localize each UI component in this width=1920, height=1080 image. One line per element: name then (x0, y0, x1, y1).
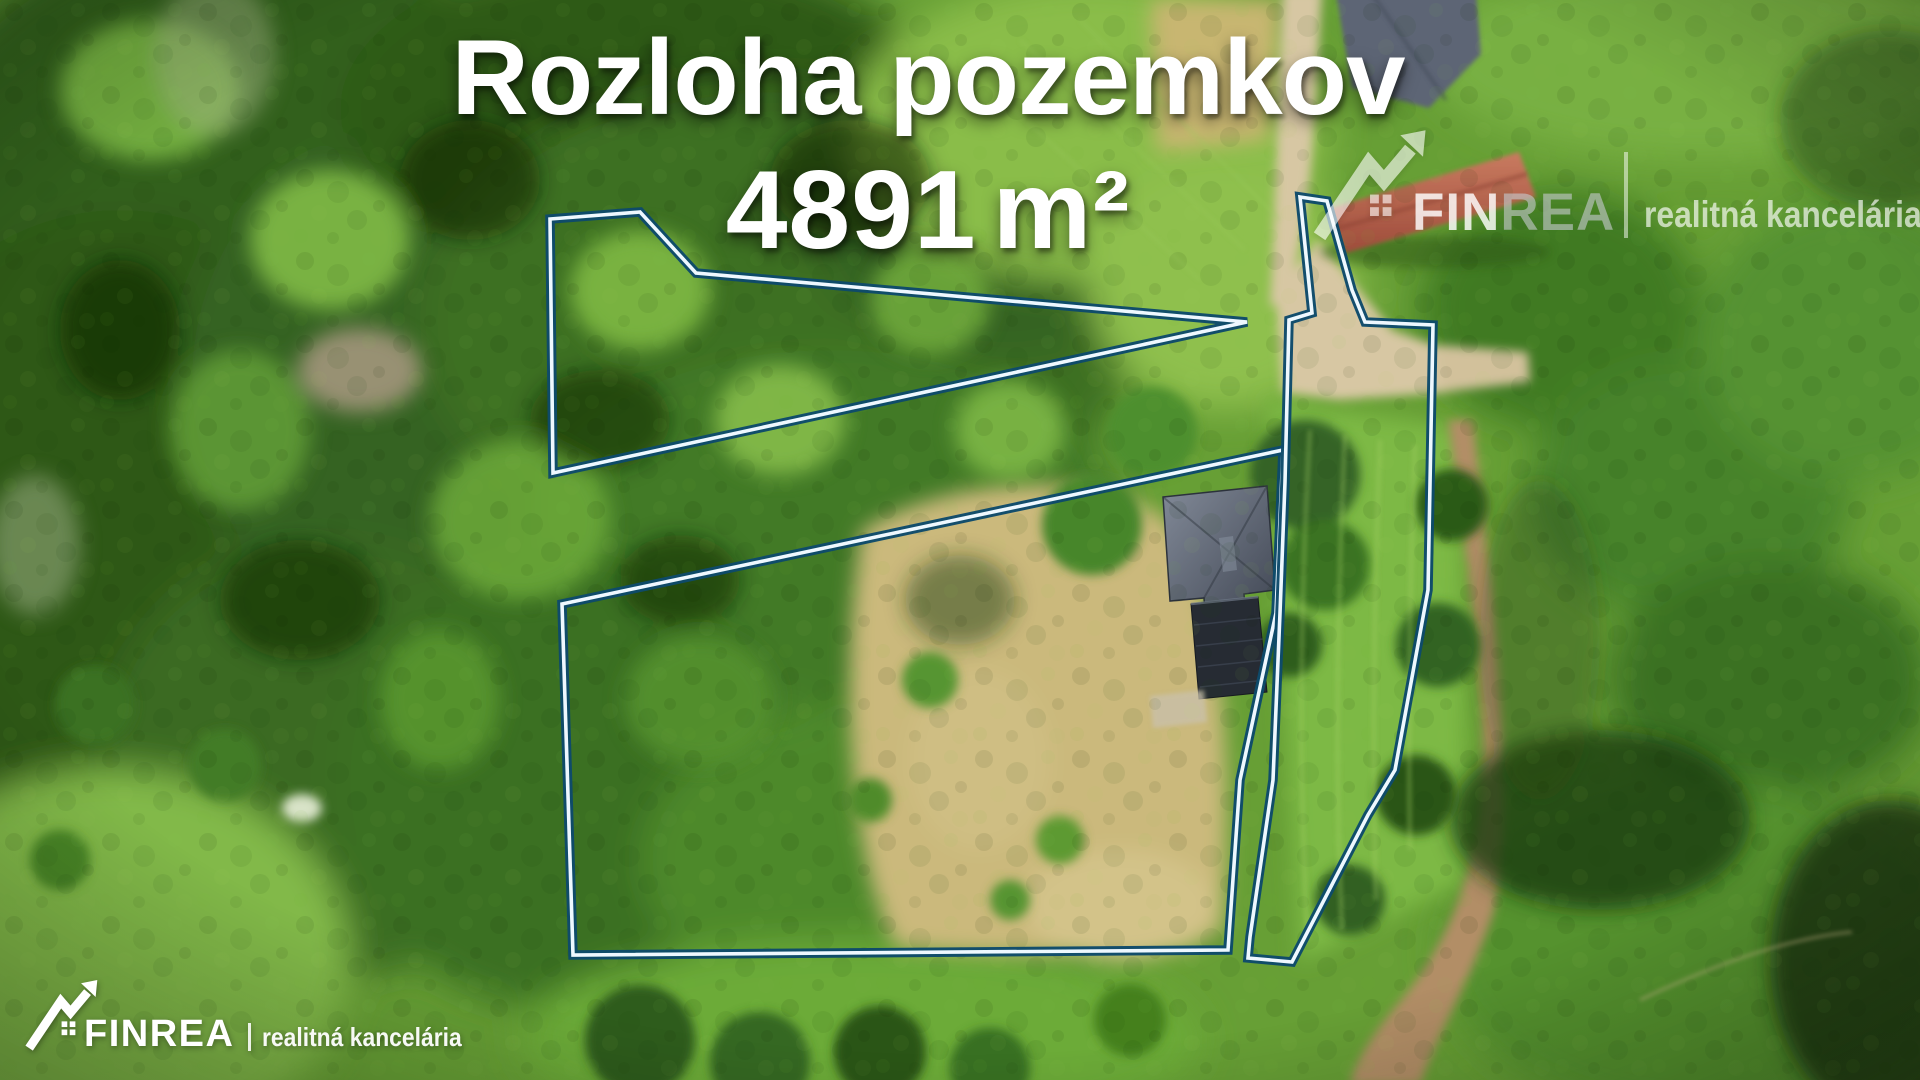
plot-main-field (562, 450, 1283, 955)
finrea-watermark: FINREA realitná kancelária (1312, 130, 1912, 256)
logo-tagline: realitná kancelária (262, 1022, 462, 1053)
aerial-photo: Rozloha pozemkov 4891m² FINREA realitná … (0, 0, 1920, 1080)
area-value: 4891 (726, 148, 977, 272)
logo-divider (248, 1023, 251, 1051)
watermark-divider (1624, 152, 1628, 238)
brand-name-fin: FIN (1412, 183, 1500, 242)
watermark-brand-name: FINREA (1412, 182, 1615, 243)
headline-title: Rozloha pozemkov (451, 12, 1404, 143)
area-unit: m² (993, 148, 1131, 272)
watermark-tagline: realitná kancelária (1644, 194, 1920, 236)
headline: Rozloha pozemkov 4891m² (451, 12, 1404, 278)
finrea-logo: FINREA realitná kancelária (24, 980, 494, 1064)
brand-name-rea: REA (1500, 183, 1615, 242)
logo-brand-name: FINREA (84, 1013, 234, 1056)
headline-area: 4891m² (451, 143, 1404, 278)
